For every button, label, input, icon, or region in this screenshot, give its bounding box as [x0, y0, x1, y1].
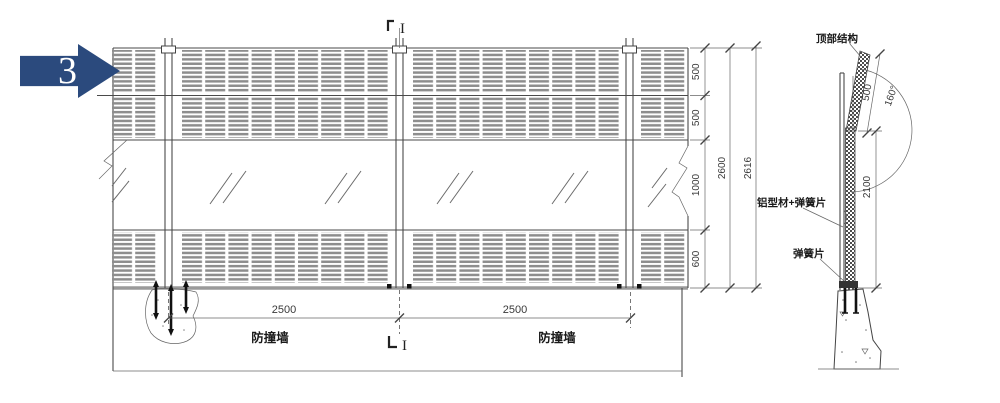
section-cut-bottom: I	[389, 290, 407, 354]
post	[623, 38, 637, 288]
label-top-structure: 顶部结构	[816, 32, 858, 45]
panel-section	[846, 128, 856, 290]
label-spring: 弹簧片	[793, 247, 825, 260]
dim-bay-2: 2500	[503, 304, 527, 316]
dim-bay-1: 2500	[272, 304, 296, 316]
glass-panels	[112, 168, 667, 207]
dim-height: 2100	[862, 175, 873, 198]
dim-seg-bottom: 600	[691, 250, 702, 267]
crash-wall-base	[818, 281, 899, 369]
section-view: 160° 500 2100 顶部结构 铝型材+弹簧片 弹簧片 防撞墙	[757, 32, 912, 369]
wall-label-2: 防撞墙	[538, 330, 576, 345]
section-letter-top: I	[400, 21, 405, 37]
wall-label-1: 防撞墙	[251, 330, 289, 345]
break-line-right	[672, 146, 688, 216]
dim-seg-upper: 500	[691, 109, 702, 126]
dim-overall-outer: 2616	[743, 156, 754, 179]
dim-seg-middle: 1000	[691, 173, 702, 196]
louver-panels	[112, 50, 687, 283]
post	[162, 38, 176, 288]
technical-drawing: I I 2500 2500 防撞墙 防撞墙	[0, 0, 1000, 403]
label-aluminum-spring: 铝型材+弹簧片	[757, 196, 826, 209]
dim-seg-top: 500	[691, 63, 702, 80]
section-letter-bottom: I	[402, 338, 407, 354]
dimension-chain-right: 500 500 1000 600 2600 2616	[690, 42, 762, 293]
elevation-view: I I 2500 2500 防撞墙 防撞墙	[97, 21, 762, 377]
post	[393, 38, 407, 288]
dim-overall-inner: 2600	[717, 156, 728, 179]
dim-angle: 160°	[883, 85, 900, 108]
drawing-canvas: I I 2500 2500 防撞墙 防撞墙	[0, 0, 1000, 403]
